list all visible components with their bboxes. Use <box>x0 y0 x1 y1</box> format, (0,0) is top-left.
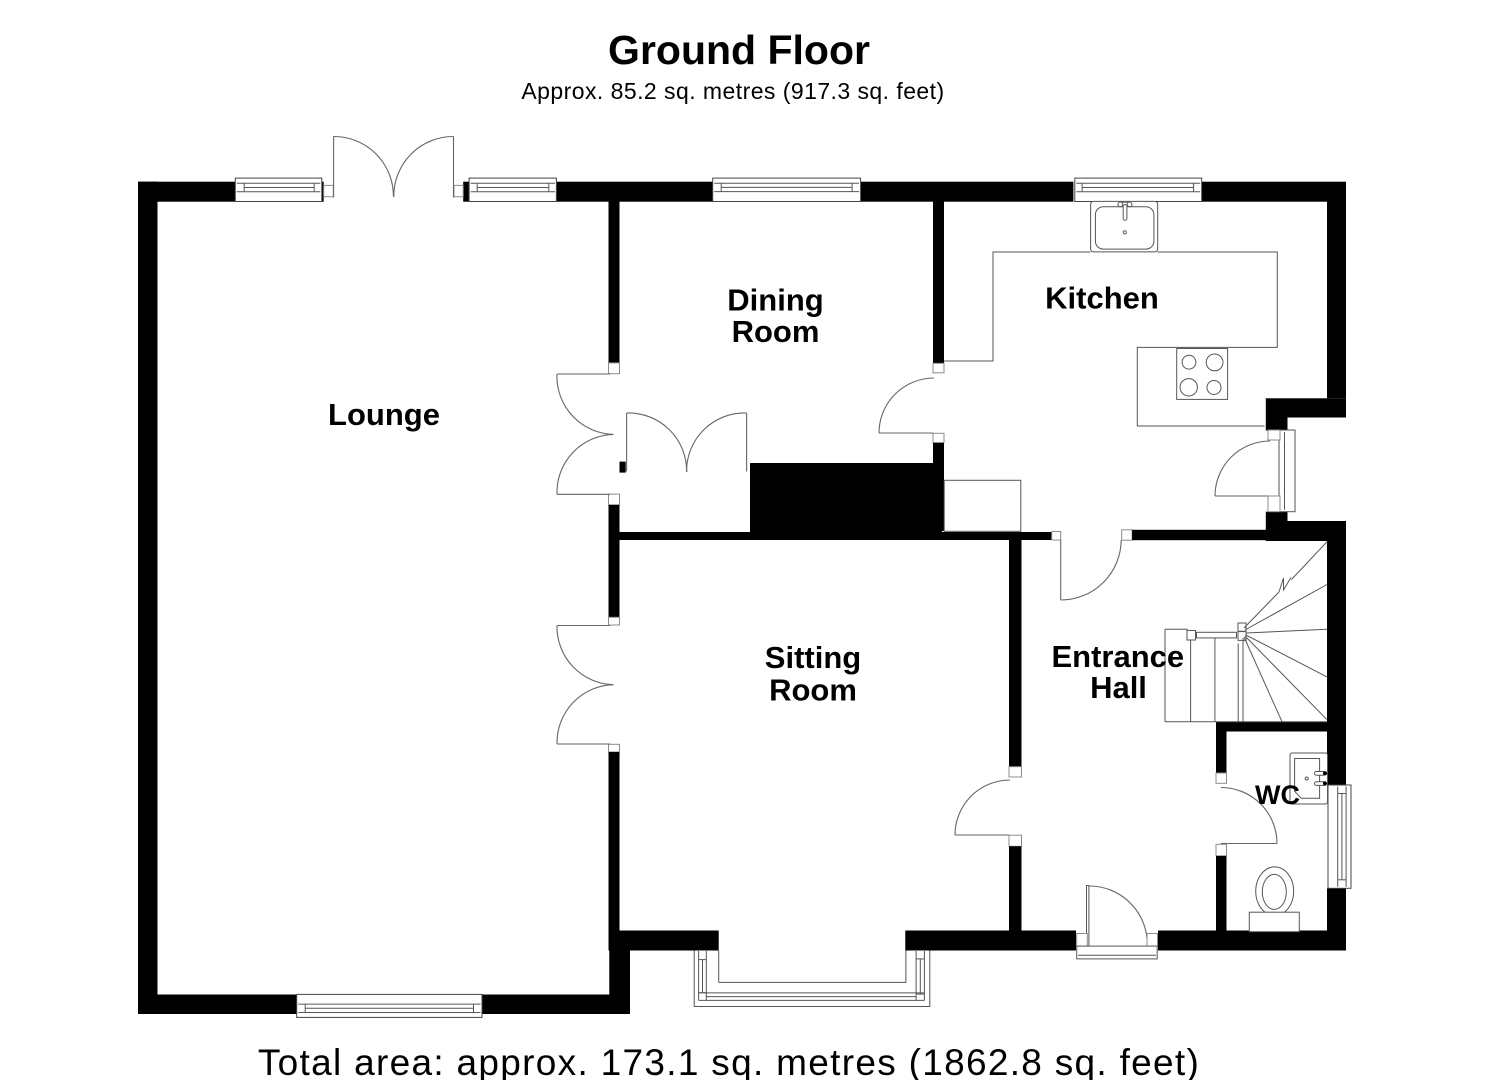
svg-text:Lounge: Lounge <box>328 397 440 432</box>
svg-text:Room: Room <box>769 673 857 708</box>
svg-text:Room: Room <box>732 314 820 349</box>
svg-text:Approx. 85.2 sq. metres (917.3: Approx. 85.2 sq. metres (917.3 sq. feet) <box>521 78 944 104</box>
svg-text:Entrance: Entrance <box>1051 639 1184 674</box>
svg-text:WC: WC <box>1255 780 1300 810</box>
svg-text:Ground Floor: Ground Floor <box>608 27 870 73</box>
svg-text:Kitchen: Kitchen <box>1045 281 1159 316</box>
svg-text:Dining: Dining <box>727 283 823 318</box>
svg-text:Hall: Hall <box>1090 670 1147 705</box>
svg-text:Total area: approx. 173.1 sq.: Total area: approx. 173.1 sq. metres (18… <box>258 1042 1200 1080</box>
svg-text:Sitting: Sitting <box>765 640 861 675</box>
